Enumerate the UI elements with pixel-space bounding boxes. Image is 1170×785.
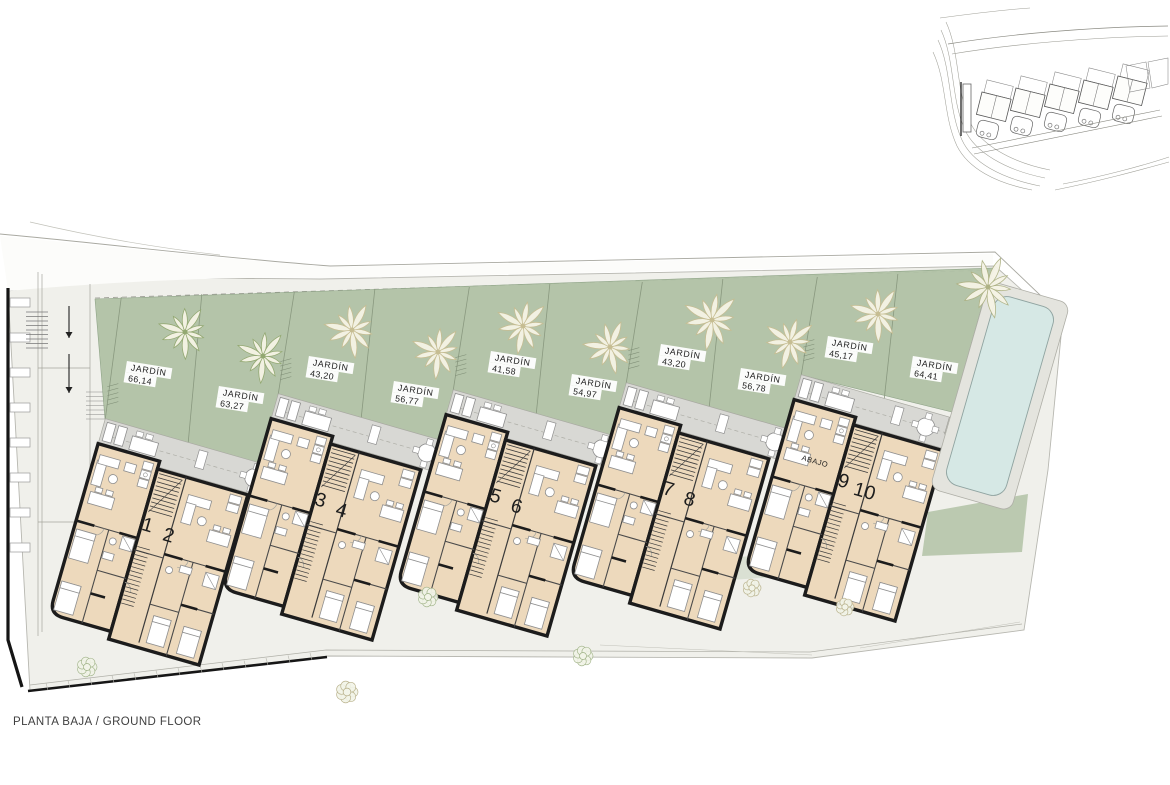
floorplan-page: 12345678910ABAJO JARDÍN66,14JARDÍN63,27J… xyxy=(0,0,1170,785)
site-minimap xyxy=(933,8,1169,190)
bush xyxy=(419,587,438,607)
bush xyxy=(743,579,761,597)
bush xyxy=(337,681,358,703)
bush xyxy=(574,646,593,666)
floorplan-canvas: 12345678910ABAJO JARDÍN66,14JARDÍN63,27J… xyxy=(0,0,1170,785)
bush xyxy=(78,657,97,677)
floor-title: PLANTA BAJA / GROUND FLOOR xyxy=(13,716,201,728)
bush xyxy=(836,598,854,616)
